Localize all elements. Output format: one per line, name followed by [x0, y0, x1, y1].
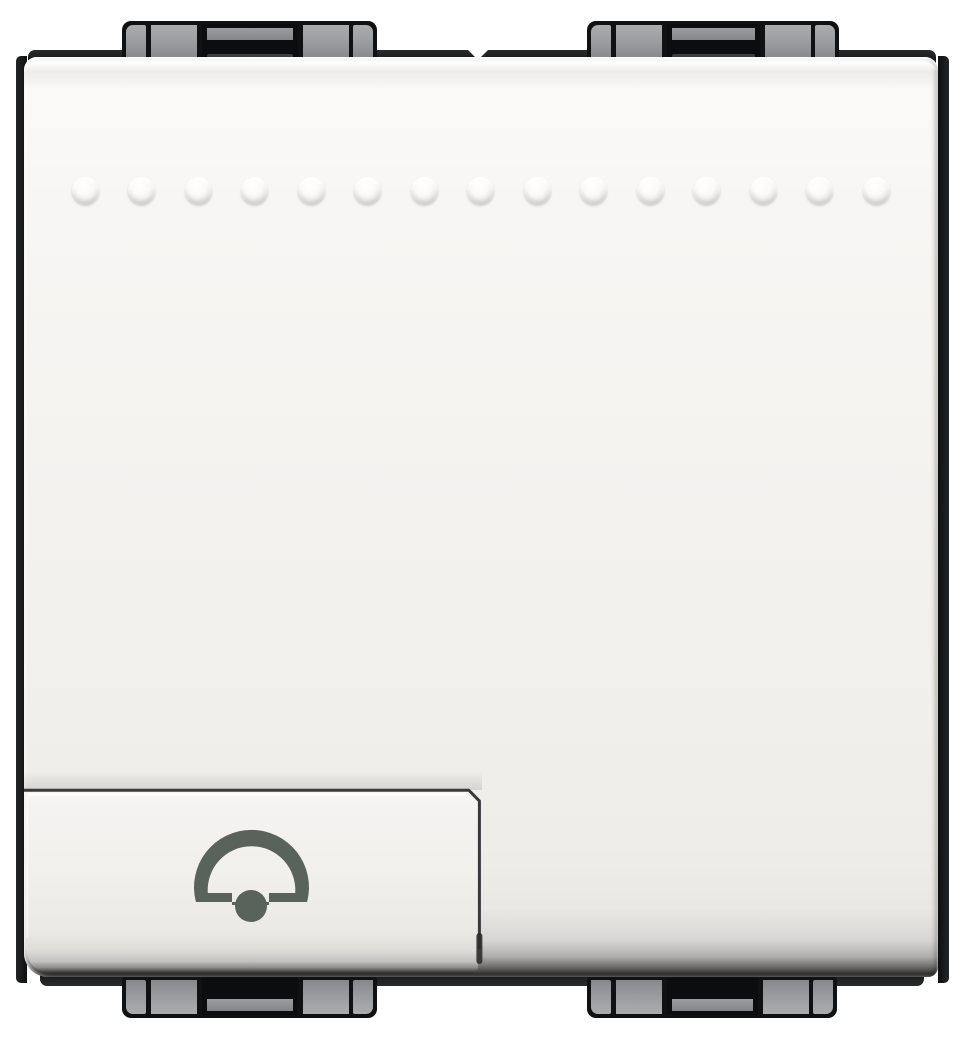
emboss-dot	[241, 177, 268, 204]
emboss-dot	[863, 177, 890, 204]
clip-tab-outer-left	[591, 980, 611, 1014]
clip-slot	[667, 977, 758, 1015]
clip-slot	[202, 24, 298, 61]
clip-tab-outer-left	[591, 25, 611, 59]
bell-clapper	[235, 890, 267, 922]
clip-tab-outer-right	[815, 25, 835, 59]
emboss-dot	[411, 177, 438, 204]
emboss-dot	[580, 177, 607, 204]
emboss-dot	[750, 177, 777, 204]
clip-tab-inner-left	[616, 25, 662, 59]
clip-tab-inner-left	[616, 980, 662, 1014]
emboss-dot	[693, 177, 720, 204]
clip-tab-outer-right	[353, 25, 373, 59]
bell-push-button	[24, 788, 484, 978]
clip-tab-outer-left	[126, 25, 146, 59]
mounting-clip-bottom-left	[122, 977, 377, 1018]
clip-slot-bar	[672, 999, 753, 1011]
emboss-dot	[185, 177, 212, 204]
emboss-dot	[524, 177, 551, 204]
clip-slot	[667, 24, 760, 61]
clip-slot	[202, 977, 298, 1015]
emboss-dot	[72, 177, 99, 204]
clip-tab-inner-right	[765, 25, 811, 59]
emboss-dot	[298, 177, 325, 204]
mounting-clip-top-left	[122, 21, 377, 61]
clip-tab-inner-left	[151, 980, 197, 1014]
emboss-dot	[354, 177, 381, 204]
clip-tab-inner-left	[151, 25, 197, 59]
clip-tab-inner-right	[763, 980, 809, 1014]
clip-slot-bar	[672, 28, 755, 40]
button-face	[26, 792, 478, 974]
emboss-dot	[467, 177, 494, 204]
clip-tab-inner-right	[303, 25, 349, 59]
product-photo	[0, 0, 965, 1038]
clip-slot-bar	[207, 999, 293, 1011]
emboss-dot	[806, 177, 833, 204]
clip-slot-bar	[207, 28, 293, 40]
clip-tab-outer-left	[126, 980, 146, 1014]
mounting-clip-top-right	[587, 21, 839, 61]
plate-top-shade	[24, 62, 938, 90]
emboss-dot	[128, 177, 155, 204]
frame-strip-right	[938, 56, 949, 983]
mounting-clip-bottom-right	[587, 977, 837, 1018]
clip-tab-inner-right	[303, 980, 349, 1014]
emboss-dot	[637, 177, 664, 204]
clip-tab-outer-right	[813, 980, 833, 1014]
clip-tab-outer-right	[353, 980, 373, 1014]
